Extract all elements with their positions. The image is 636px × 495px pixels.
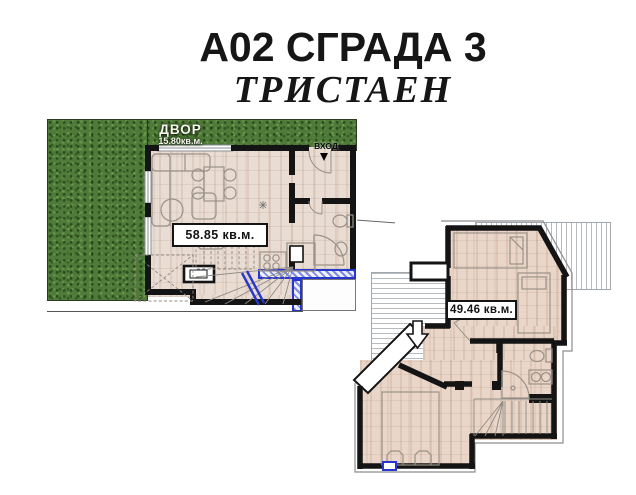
- upper-floor-plan: 49.46 кв.м.: [353, 220, 615, 495]
- entrance-label: ВХОД: [305, 141, 347, 151]
- bed-right: [518, 273, 550, 333]
- lower-floor-plan: ДВОР 15.80кв.м. ВХОД 58.85 кв.м.: [45, 117, 377, 319]
- dining-table-with-chairs: [192, 167, 236, 201]
- kitchen-counter: [260, 243, 315, 271]
- lower-floor-area-badge: 58.85 кв.м.: [172, 223, 268, 247]
- exterior-stair-band: [354, 321, 428, 393]
- coffee-table: [161, 199, 183, 221]
- bed-top: [454, 233, 527, 268]
- tv-cabinet: [184, 266, 214, 282]
- stairs-upper: [474, 399, 552, 436]
- bathroom-door-swing: [309, 201, 322, 214]
- bedroom-door-leaf: [454, 318, 470, 341]
- floor-plan-poster: А02 СГРАДА 3 ТРИСТАЕН: [0, 0, 636, 495]
- yard-title: ДВОР: [123, 122, 238, 137]
- shower-upper: [502, 371, 529, 398]
- bed-bottom: [382, 392, 439, 465]
- corner-sofa: [152, 154, 210, 226]
- page-subtitle: ТРИСТАЕН: [25, 68, 636, 112]
- yard-label: ДВОР 15.80кв.м.: [123, 122, 238, 146]
- upper-floor-area-badge: 49.46 кв.м.: [446, 300, 517, 320]
- window-marker-blue: [383, 462, 396, 470]
- shower: [314, 235, 344, 265]
- toilet-upper: [530, 349, 552, 362]
- sink: [335, 242, 347, 256]
- window-left-1: [145, 171, 151, 203]
- window-left-2: [145, 217, 151, 255]
- double-sink-upper: [529, 370, 552, 384]
- entrance-arrow-icon: [320, 153, 328, 165]
- page-title: А02 СГРАДА 3: [25, 24, 636, 71]
- yard-area-value: 15.80кв.м.: [123, 136, 238, 146]
- upper-plan-linework: [353, 220, 615, 495]
- light-symbol: [259, 201, 267, 209]
